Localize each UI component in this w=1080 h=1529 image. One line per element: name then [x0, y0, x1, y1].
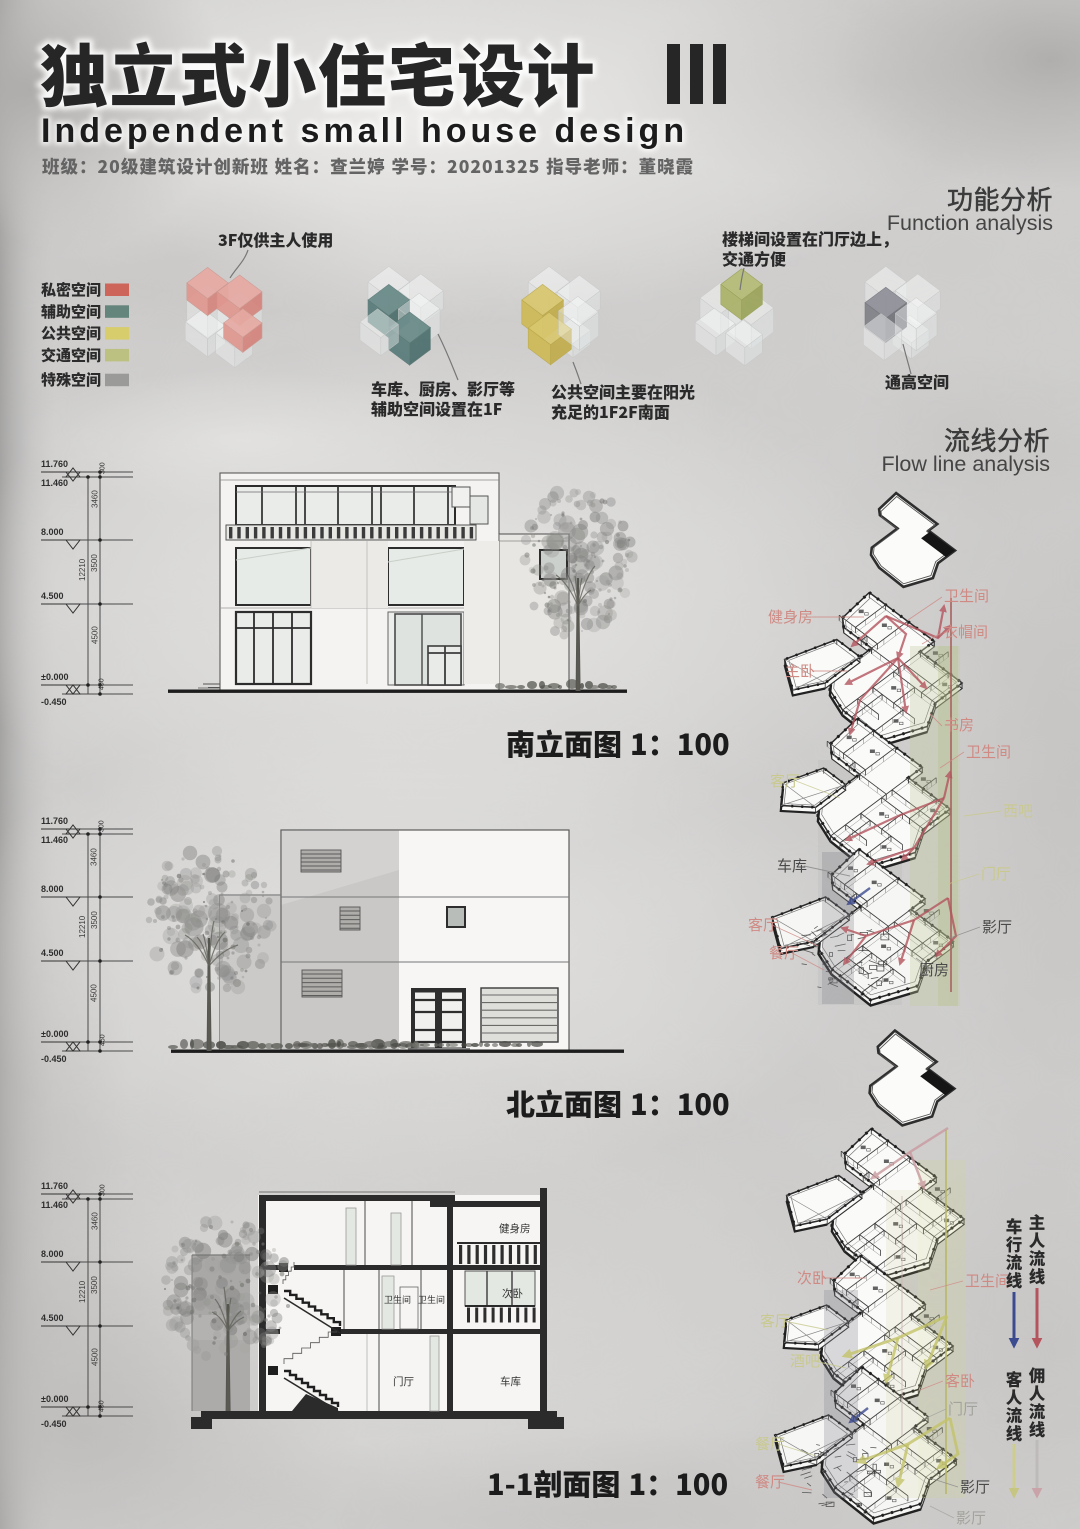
svg-text:佣人流线: 佣人流线 [1025, 1366, 1049, 1439]
svg-text:影厅: 影厅 [956, 1507, 986, 1528]
svg-text:主人流线: 主人流线 [1025, 1213, 1049, 1286]
svg-text:酒吧: 酒吧 [790, 1350, 820, 1371]
svg-text:餐厅: 餐厅 [755, 1433, 785, 1454]
svg-text:餐厅: 餐厅 [755, 1471, 785, 1492]
svg-text:客厅: 客厅 [760, 1310, 790, 1331]
svg-text:客卧: 客卧 [945, 1370, 975, 1391]
svg-text:次卧: 次卧 [797, 1267, 827, 1288]
svg-text:门厅: 门厅 [948, 1398, 978, 1419]
svg-text:影厅: 影厅 [960, 1476, 990, 1497]
svg-text:车行流线: 车行流线 [1002, 1217, 1026, 1290]
svg-text:客人流线: 客人流线 [1002, 1370, 1026, 1443]
